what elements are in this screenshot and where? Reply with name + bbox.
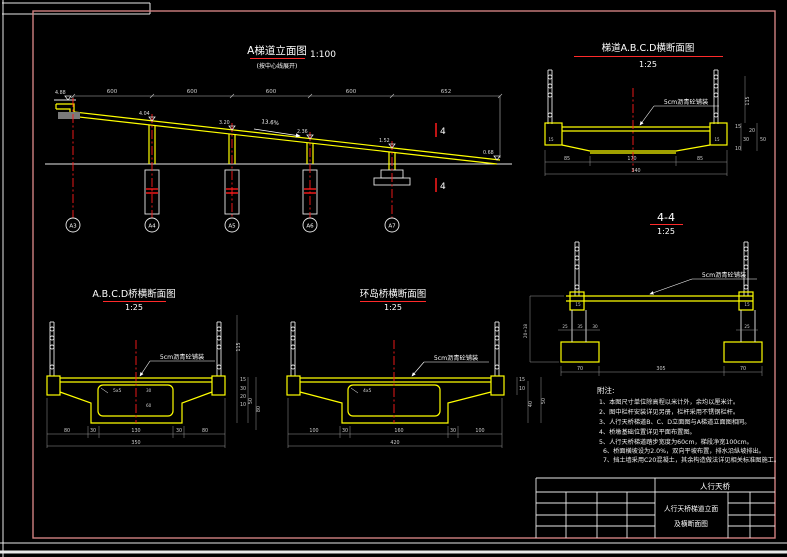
span-dim: 600 — [107, 89, 118, 95]
span-dim: 600 — [346, 89, 357, 95]
dim: 20+18 — [523, 324, 528, 339]
dim: 115 — [745, 96, 751, 105]
dim: 50 — [760, 137, 766, 143]
level-value: 2.36 — [297, 129, 308, 135]
dim: 10 — [519, 386, 525, 392]
dim: 30 — [240, 386, 246, 392]
section-number: 4 — [440, 127, 446, 137]
level-value: 4.88 — [55, 90, 66, 96]
dim: 50 — [541, 398, 547, 404]
note-item: 4、桥墩基础位置详见平面布置图。 — [599, 428, 696, 436]
dim: 10 — [735, 146, 741, 152]
stair-section-title: 梯道A.B.C.D横断面图 — [602, 42, 695, 54]
note-item: 1、本图尺寸单位除高程以米计外，余均以厘米计。 — [599, 398, 739, 406]
level-value: 0.68 — [483, 150, 494, 156]
axis-label: A4 — [148, 223, 156, 229]
dim: 160 — [394, 428, 403, 434]
dim: 30 — [90, 428, 96, 434]
island-section-title: 环岛桥横断面图 — [360, 288, 427, 300]
dim: 85 — [564, 156, 570, 162]
dim: 35 — [577, 324, 583, 329]
dim: 305 — [656, 366, 665, 372]
dim: 70 — [740, 366, 746, 372]
dim: 20 — [749, 128, 755, 134]
cad-drawing-sheet: A梯道立面图 1:100 (按中心线展开) 600 600 600 600 65… — [0, 0, 787, 557]
elevation-title: A梯道立面图 — [247, 44, 307, 57]
dim: 40 — [528, 401, 534, 407]
dim: 25 — [744, 324, 750, 329]
level-value: 1.52 — [379, 138, 390, 144]
dim: 80 — [202, 428, 208, 434]
bridge-section-title: A.B.C.D桥横断面图 — [92, 288, 175, 300]
level-value: 3.20 — [219, 120, 230, 126]
drawing-title-line1: 人行天桥梯道立面 — [664, 504, 719, 513]
dim: 20 — [240, 394, 246, 400]
dim: 85 — [697, 156, 703, 162]
dim: 10 — [240, 402, 246, 408]
note-item: 6、桥面横坡设为2.0%，双向平坡布置，排水沿纵坡排出。 — [603, 447, 765, 455]
pavement-label: 5cm沥青砼铺装 — [702, 271, 746, 279]
chamfer-label: 4x5 — [363, 388, 372, 394]
cad-canvas: A梯道立面图 1:100 (按中心线展开) 600 600 600 600 65… — [0, 0, 787, 557]
dim: 30 — [743, 137, 749, 143]
chamfer-label: 5x5 — [113, 388, 122, 394]
dim: 15 — [240, 377, 246, 383]
dim: 170 — [627, 156, 636, 162]
dim: 25 — [562, 324, 568, 329]
dim: 80 — [256, 406, 262, 412]
pavement-label: 5cm沥青砼铺装 — [434, 354, 478, 362]
section44-title: 4-4 — [657, 211, 675, 224]
drawing-title-line2: 及横断面图 — [674, 519, 708, 528]
note-item: 2、图中栏杆安装详见另册，栏杆采用不锈钢栏杆。 — [599, 408, 739, 416]
elevation-subtitle: (按中心线展开) — [257, 62, 298, 70]
block-dim: 15 — [714, 137, 720, 142]
elevation-scale: 1:100 — [310, 50, 336, 60]
dim: 70 — [577, 366, 583, 372]
bridge-section-scale: 1:25 — [125, 303, 143, 312]
stair-section-scale: 1:25 — [639, 60, 657, 69]
dim: 30 — [342, 428, 348, 434]
dim-total: 340 — [631, 168, 640, 174]
dim: 30 — [592, 324, 598, 329]
notes-heading: 附注: — [597, 385, 615, 395]
dim: 100 — [475, 428, 484, 434]
span-dim: 600 — [266, 89, 277, 95]
pavement-label: 5cm沥青砼铺装 — [664, 98, 708, 106]
level-value: 4.04 — [139, 111, 150, 117]
block-dim: 15 — [548, 137, 554, 142]
dim-total: 420 — [390, 440, 399, 446]
dim: 15 — [519, 377, 525, 383]
axis-label: A6 — [306, 223, 314, 229]
note-item: 5、人行天桥梯道踏步宽度为60cm，梯段净宽100cm。 — [599, 438, 753, 446]
dim: 30 — [450, 428, 456, 434]
dim: 30 — [176, 428, 182, 434]
dim-total: 350 — [131, 440, 140, 446]
dim: 115 — [236, 342, 242, 351]
background — [0, 0, 787, 557]
dim: 130 — [131, 428, 140, 434]
dim: 60 — [146, 403, 152, 408]
dim: 15 — [735, 124, 741, 130]
note-item: 3、人行天桥梯道B、C、D立面图与A梯道立面图相同。 — [599, 418, 750, 426]
span-dim: 652 — [441, 89, 452, 95]
axis-label: A3 — [69, 223, 77, 229]
block-dim: 15 — [575, 302, 581, 307]
abutment-block — [58, 112, 80, 119]
island-section-scale: 1:25 — [384, 303, 402, 312]
note-item: 7、挡土墙采用C20混凝土，其余构造做法详见相关标准图施工。 — [603, 456, 780, 464]
section-number: 4 — [440, 182, 446, 192]
axis-label: A5 — [228, 223, 236, 229]
axis-label: A7 — [388, 223, 396, 229]
dim: 80 — [64, 428, 70, 434]
section44-scale: 1:25 — [657, 227, 675, 236]
dim: 30 — [146, 388, 152, 393]
dim: 50 — [248, 398, 254, 404]
pavement-label: 5cm沥青砼铺装 — [160, 353, 204, 361]
project-name: 人行天桥 — [700, 481, 730, 491]
dim: 100 — [309, 428, 318, 434]
span-dim: 600 — [187, 89, 198, 95]
block-dim: 15 — [744, 302, 750, 307]
